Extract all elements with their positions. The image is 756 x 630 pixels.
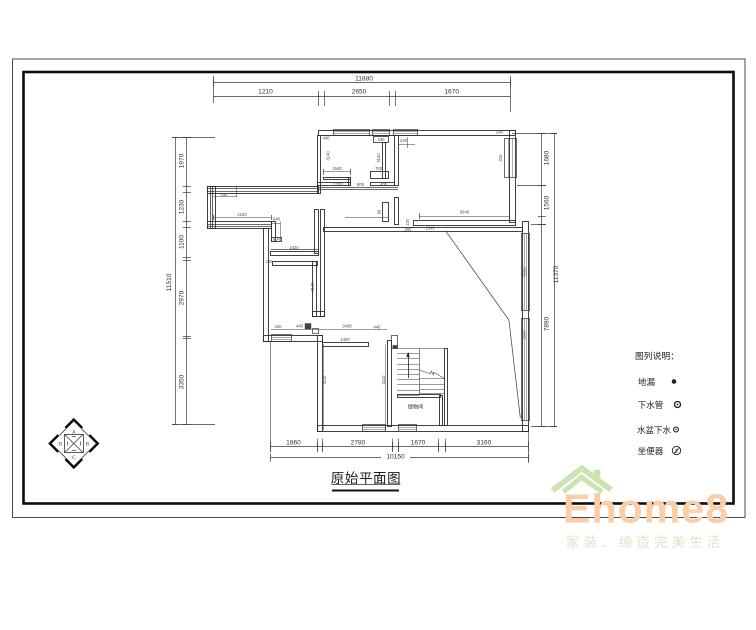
svg-text:11880: 11880 bbox=[355, 76, 373, 83]
svg-text:1560: 1560 bbox=[544, 195, 551, 210]
svg-text:2100: 2100 bbox=[237, 212, 247, 217]
svg-text:2650: 2650 bbox=[352, 89, 367, 96]
svg-text:5640: 5640 bbox=[460, 210, 470, 215]
svg-text:D: D bbox=[58, 441, 62, 447]
svg-text:1420: 1420 bbox=[289, 245, 299, 250]
svg-text:坐便器: 坐便器 bbox=[638, 446, 664, 456]
svg-text:11370: 11370 bbox=[553, 265, 560, 283]
svg-text:1680: 1680 bbox=[544, 150, 551, 165]
svg-text:1540: 1540 bbox=[425, 225, 435, 230]
svg-text:2110: 2110 bbox=[322, 375, 327, 385]
svg-text:2140: 2140 bbox=[310, 282, 315, 292]
svg-text:1210: 1210 bbox=[258, 89, 273, 96]
svg-text:5250: 5250 bbox=[523, 267, 528, 277]
svg-text:440: 440 bbox=[296, 324, 304, 329]
svg-text:240: 240 bbox=[496, 130, 504, 135]
svg-text:图列说明：: 图列说明： bbox=[635, 350, 679, 361]
svg-text:水盆下水: 水盆下水 bbox=[637, 425, 672, 435]
svg-text:200: 200 bbox=[405, 227, 413, 232]
svg-text:1860: 1860 bbox=[286, 440, 301, 447]
svg-text:120: 120 bbox=[405, 218, 410, 226]
svg-text:3140: 3140 bbox=[376, 153, 381, 163]
svg-text:下水管: 下水管 bbox=[638, 400, 664, 410]
svg-text:Ehome8: Ehome8 bbox=[563, 486, 727, 532]
svg-text:C: C bbox=[72, 455, 76, 461]
svg-text:440: 440 bbox=[275, 324, 283, 329]
svg-text:1970: 1970 bbox=[179, 153, 186, 168]
svg-text:400: 400 bbox=[380, 182, 388, 187]
svg-text:2780: 2780 bbox=[351, 440, 366, 447]
svg-text:7890: 7890 bbox=[544, 316, 551, 331]
svg-text:1670: 1670 bbox=[411, 440, 426, 447]
svg-text:原始平面图: 原始平面图 bbox=[331, 471, 402, 486]
svg-text:3140: 3140 bbox=[326, 151, 331, 161]
svg-text:10150: 10150 bbox=[386, 453, 405, 460]
svg-text:家装．缔造完美生活: 家装．缔造完美生活 bbox=[566, 534, 724, 550]
svg-text:1330: 1330 bbox=[333, 182, 343, 187]
svg-text:3430: 3430 bbox=[342, 324, 352, 329]
svg-text:430: 430 bbox=[378, 137, 386, 142]
svg-text:1540: 1540 bbox=[332, 166, 342, 171]
svg-text:11510: 11510 bbox=[166, 273, 173, 291]
svg-text:840: 840 bbox=[273, 217, 281, 222]
svg-text:440: 440 bbox=[374, 325, 382, 330]
svg-text:390: 390 bbox=[266, 259, 274, 264]
svg-text:900: 900 bbox=[273, 237, 281, 242]
svg-text:3160: 3160 bbox=[477, 440, 492, 447]
svg-text:2970: 2970 bbox=[179, 290, 186, 305]
svg-text:240: 240 bbox=[400, 138, 408, 143]
svg-text:700: 700 bbox=[375, 166, 383, 171]
svg-text:1670: 1670 bbox=[444, 89, 459, 96]
svg-text:A: A bbox=[72, 430, 76, 436]
svg-text:地漏: 地漏 bbox=[638, 377, 656, 387]
svg-text:储物间: 储物间 bbox=[408, 403, 424, 411]
svg-text:1100: 1100 bbox=[179, 235, 186, 249]
svg-text:3350: 3350 bbox=[179, 374, 186, 389]
svg-text:1230: 1230 bbox=[179, 199, 186, 214]
svg-text:B: B bbox=[86, 441, 90, 447]
svg-text:800: 800 bbox=[357, 182, 365, 187]
svg-text:430: 430 bbox=[221, 192, 229, 197]
svg-text:90: 90 bbox=[377, 209, 382, 214]
svg-text:1400: 1400 bbox=[340, 337, 350, 342]
svg-text:2110: 2110 bbox=[381, 375, 386, 385]
svg-text:310: 310 bbox=[498, 154, 503, 162]
svg-text:1500: 1500 bbox=[522, 330, 527, 340]
svg-text:440: 440 bbox=[323, 135, 331, 140]
